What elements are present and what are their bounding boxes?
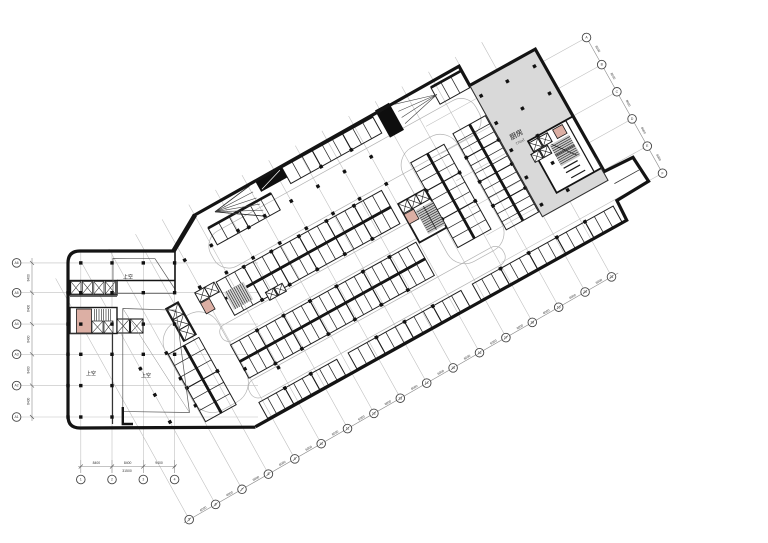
svg-text:A3: A3 [15, 352, 19, 356]
svg-text:8000: 8000 [655, 153, 662, 161]
svg-text:A5: A5 [15, 291, 19, 295]
svg-text:8400: 8400 [27, 274, 31, 281]
svg-text:上空: 上空 [123, 274, 133, 281]
svg-text:31500: 31500 [122, 469, 132, 473]
svg-text:2: 2 [111, 478, 113, 482]
svg-text:8400: 8400 [27, 366, 31, 373]
svg-text:3: 3 [142, 478, 144, 482]
svg-text:A6: A6 [15, 261, 19, 265]
svg-text:8400: 8400 [27, 305, 31, 312]
svg-text:8400: 8400 [124, 461, 132, 465]
svg-text:8400: 8400 [93, 461, 101, 465]
svg-text:上空: 上空 [141, 372, 151, 379]
svg-text:8000: 8000 [594, 45, 601, 53]
svg-text:F: F [661, 171, 663, 175]
svg-text:8400: 8400 [27, 398, 31, 405]
svg-text:1: 1 [80, 478, 82, 482]
svg-text:A4: A4 [15, 322, 19, 326]
svg-text:9400: 9400 [155, 461, 163, 465]
svg-text:8400: 8400 [27, 335, 31, 342]
svg-text:8000: 8000 [610, 72, 617, 80]
svg-text:上空: 上空 [86, 370, 96, 377]
svg-text:8000: 8000 [625, 99, 632, 107]
svg-text:A2: A2 [15, 384, 19, 388]
svg-text:8000: 8000 [640, 126, 647, 134]
svg-text:4: 4 [174, 478, 176, 482]
svg-text:A1: A1 [15, 415, 19, 419]
